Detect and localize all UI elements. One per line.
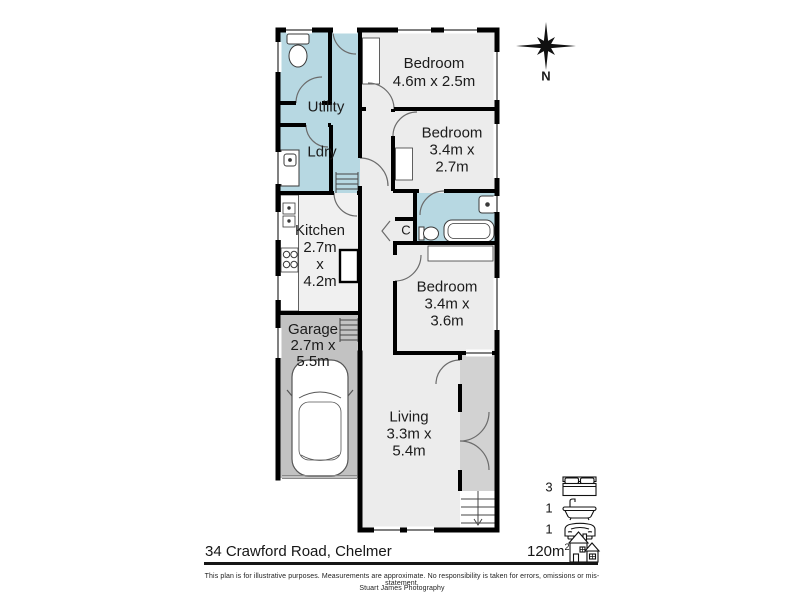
garage-label: Garage 2.7m x 5.5m [288,322,338,370]
bathroom-toilet [419,227,439,240]
bed-count: 3 [545,480,552,495]
living-label: Living 3.3m x 5.4m [386,409,431,460]
closet-label: C [401,223,410,238]
laundry-sink [281,150,299,186]
footer-divider [204,562,598,565]
bedroom3-label: Bedroom 3.4m x 3.6m [417,279,478,330]
floorplan-canvas: Utility Ldry Kitchen 2.7m x 4.2m Garage … [0,0,800,600]
bed-icon [563,477,596,496]
bath-icon [563,499,596,520]
bedroom1-label: Bedroom 4.6m x 2.5m [393,55,476,91]
wc-toilet [287,34,309,67]
kitchen-label: Kitchen 2.7m x 4.2m [295,222,345,290]
utility-label: Utility [308,99,345,116]
compass-rose-icon [516,22,576,70]
car-count: 1 [545,522,552,537]
address-text: 34 Crawford Road, Chelmer [205,543,392,560]
floor-area-text: 120m2 [527,542,570,560]
bedroom3-wardrobe [428,246,493,261]
bedroom2-label: Bedroom 3.4m x 2.7m [422,125,483,176]
car-graphic [287,360,353,476]
bathroom-sink [479,196,496,213]
north-label: N [541,69,550,84]
bathtub [444,220,494,242]
ldry-label: Ldry [307,144,336,161]
bedroom2-wardrobe [396,148,413,180]
bedroom1-wardrobe [363,38,380,84]
credit-text: Stuart James Photography [202,585,602,592]
bath-count: 1 [545,501,552,516]
front-door-gap [333,27,357,34]
